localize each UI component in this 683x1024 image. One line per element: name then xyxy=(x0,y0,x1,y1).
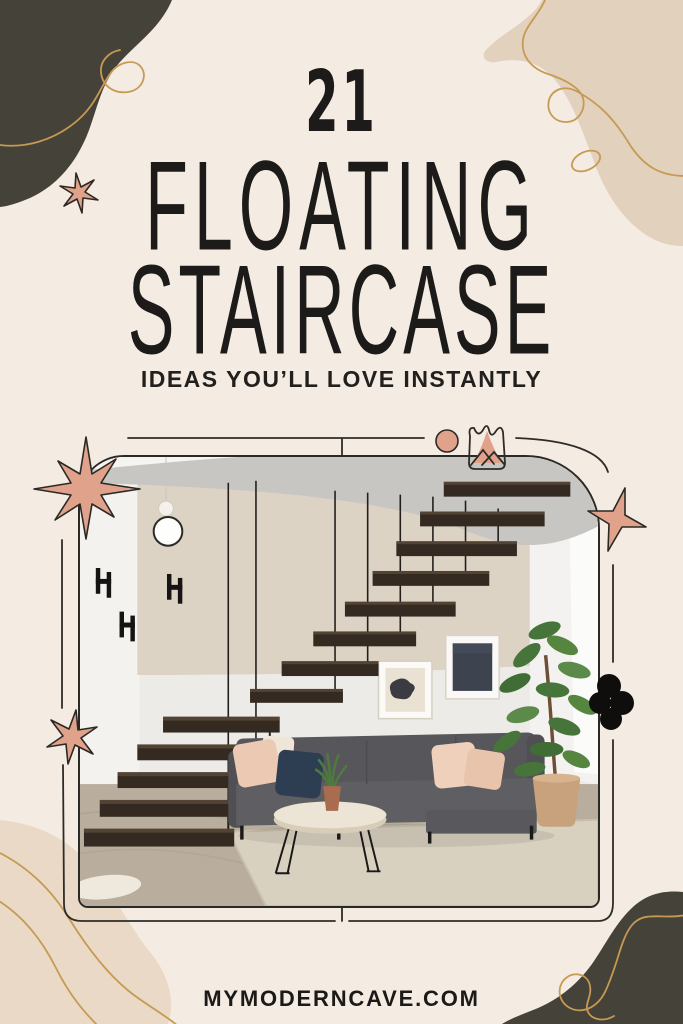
website-url: MYMODERNCAVE.COM xyxy=(0,986,683,1012)
subtitle: IDEAS YOU’LL LOVE INSTANTLY xyxy=(0,366,683,393)
pinterest-pin-graphic: 21 FLOATING STAIRCASE IDEAS YOU’LL LOVE … xyxy=(0,0,683,1024)
navy-pillow xyxy=(274,749,324,799)
dot-ornament-icon xyxy=(436,430,458,452)
blush-pillow-right-2 xyxy=(463,748,506,791)
blush-pillow-left xyxy=(232,738,282,789)
photo-illustration xyxy=(80,457,598,906)
wall-art-frame-1 xyxy=(379,661,432,718)
planter-pot xyxy=(533,778,580,827)
wall-art-frame-2 xyxy=(446,635,499,698)
title-line-2: STAIRCASE xyxy=(0,237,683,383)
staircase-photo xyxy=(78,455,600,908)
